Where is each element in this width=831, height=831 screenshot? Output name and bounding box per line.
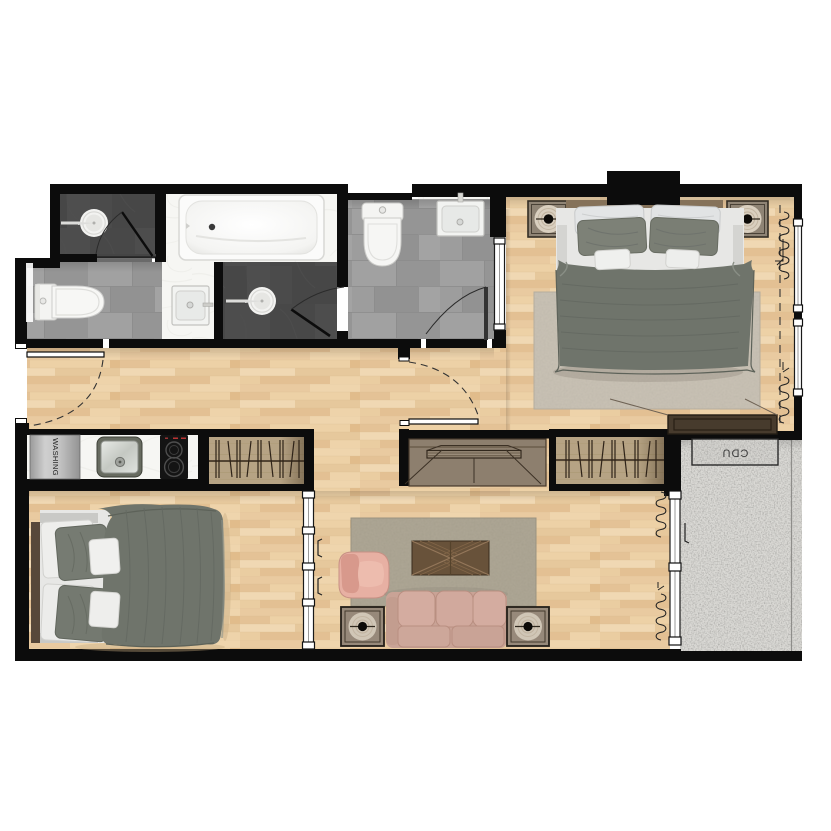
svg-text:WASHING: WASHING xyxy=(51,438,60,476)
svg-text:CDU: CDU xyxy=(722,447,749,459)
